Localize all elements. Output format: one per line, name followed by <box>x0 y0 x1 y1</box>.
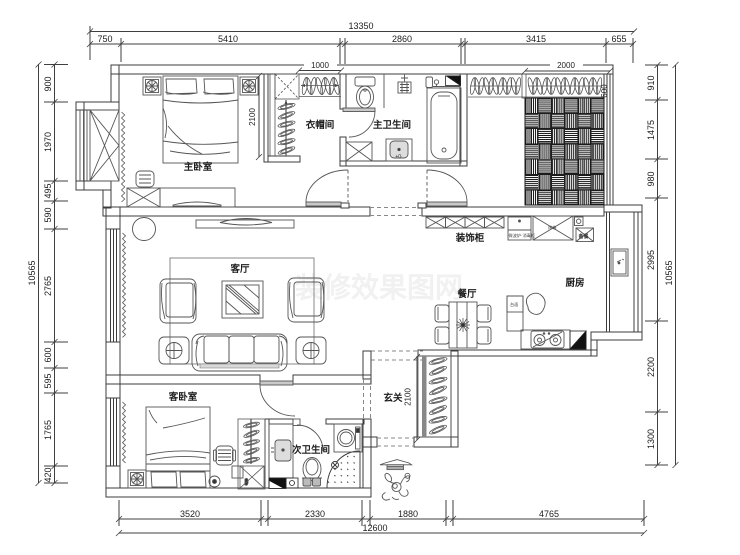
svg-text:+0·: +0· <box>395 154 403 160</box>
svg-text:2200: 2200 <box>646 357 656 377</box>
svg-text:5410: 5410 <box>218 34 238 44</box>
svg-text:1300: 1300 <box>646 429 656 449</box>
svg-text:1880: 1880 <box>398 509 418 519</box>
svg-text:2100: 2100 <box>404 388 413 406</box>
svg-text:1000: 1000 <box>311 61 329 70</box>
svg-text:装修效果图网: 装修效果图网 <box>295 272 463 303</box>
svg-text:装饰柜: 装饰柜 <box>455 232 485 244</box>
svg-text:次卫生间: 次卫生间 <box>292 444 330 456</box>
svg-text:2000: 2000 <box>557 61 575 70</box>
svg-text:4765: 4765 <box>539 509 559 519</box>
svg-text:主卫生间: 主卫生间 <box>373 119 411 131</box>
svg-text:玄关: 玄关 <box>383 392 403 404</box>
svg-text:2765: 2765 <box>43 276 53 296</box>
svg-text:900: 900 <box>43 76 53 91</box>
svg-text:台面: 台面 <box>510 301 518 308</box>
svg-text:厨房: 厨房 <box>565 277 584 289</box>
svg-text:910: 910 <box>646 75 656 90</box>
svg-text:13350: 13350 <box>348 21 373 31</box>
svg-text:600: 600 <box>43 347 53 362</box>
svg-text:3415: 3415 <box>526 34 546 44</box>
svg-text:2995: 2995 <box>646 250 656 270</box>
svg-text:主卧室: 主卧室 <box>184 161 213 173</box>
svg-text:600: 600 <box>600 84 609 98</box>
svg-text:595: 595 <box>43 373 53 388</box>
svg-text:1765: 1765 <box>43 420 53 440</box>
svg-text:980: 980 <box>646 171 656 186</box>
svg-text:烤箱: 烤箱 <box>548 224 556 231</box>
svg-text:655: 655 <box>611 34 626 44</box>
svg-text:495: 495 <box>43 183 53 198</box>
svg-text:2330: 2330 <box>305 509 325 519</box>
svg-text:2100: 2100 <box>248 108 257 126</box>
svg-text:12600: 12600 <box>362 523 387 533</box>
svg-text:750: 750 <box>97 34 112 44</box>
svg-text:备餐: 备餐 <box>578 233 590 240</box>
svg-text:10565: 10565 <box>664 260 674 285</box>
svg-text:590: 590 <box>43 207 53 222</box>
svg-text:客厅: 客厅 <box>229 263 250 275</box>
svg-text:微波炉·消毒柜: 微波炉·消毒柜 <box>509 232 536 239</box>
svg-text:1475: 1475 <box>646 120 656 140</box>
svg-text:3520: 3520 <box>180 509 200 519</box>
svg-text:餐厅: 餐厅 <box>456 288 477 300</box>
svg-text:衣帽间: 衣帽间 <box>306 119 335 131</box>
svg-text:420: 420 <box>43 467 53 482</box>
svg-text:2860: 2860 <box>392 34 412 44</box>
svg-text:10565: 10565 <box>27 260 37 285</box>
svg-text:1970: 1970 <box>43 132 53 152</box>
svg-text:客卧室: 客卧室 <box>168 391 198 403</box>
